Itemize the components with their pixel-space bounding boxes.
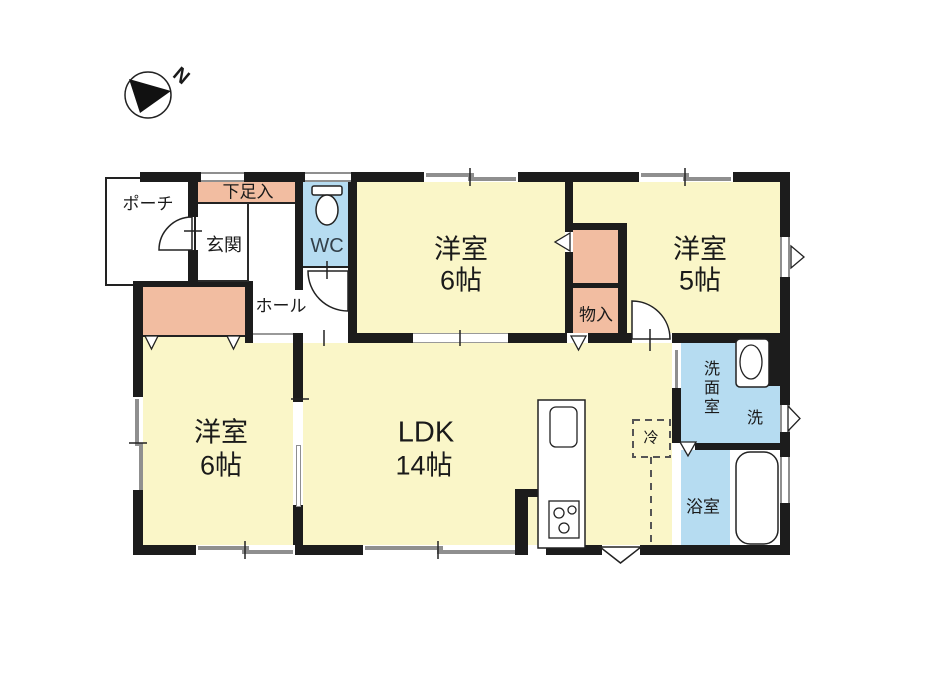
wall-wc-right — [348, 172, 357, 333]
wall-washroom-left — [672, 388, 681, 443]
window-sash — [242, 550, 293, 554]
ldk-floor — [303, 343, 672, 545]
window-right-bathroom — [780, 457, 790, 503]
bedroom-right-name: 洋室 — [673, 237, 727, 264]
sliding-door-line — [675, 350, 678, 388]
bedroom-left-name: 洋室 — [194, 420, 248, 447]
opening-ldk-back — [602, 545, 640, 555]
opening-hall-ldk — [303, 333, 348, 343]
compass-icon — [125, 72, 171, 118]
compass-north-label: N — [169, 64, 193, 89]
wall-bed-divider-a — [565, 182, 573, 232]
closet-upper-floor — [573, 230, 618, 283]
opening-storage — [567, 333, 588, 343]
wall-left-2 — [133, 490, 143, 555]
storage-label: 物入 — [579, 307, 613, 324]
wall-bottom-4 — [546, 545, 602, 555]
wall-closet2-right — [618, 223, 627, 343]
window-sash — [135, 399, 139, 446]
wall-sink-block — [768, 340, 783, 386]
window-sash — [139, 443, 143, 490]
entrance-label: 玄関 — [206, 236, 242, 254]
closet-left-floor — [143, 287, 245, 337]
shoe-cabinet-label: 下足入 — [223, 184, 274, 201]
bedroom-left-size: 6帖 — [200, 453, 242, 480]
porch-floor — [105, 177, 196, 286]
ldk-name: LDK — [398, 419, 454, 448]
opening-bedroom-top-ldk — [413, 333, 508, 343]
partition-entrance-hall — [247, 203, 249, 281]
porch-label: ポーチ — [123, 196, 174, 213]
window-right-washroom — [780, 405, 790, 432]
sliding-door-panel — [296, 445, 301, 507]
window-sash — [641, 173, 689, 177]
wall-porch-b — [188, 250, 198, 282]
bathroom-label: 浴室 — [686, 499, 720, 516]
entrance-step-line — [198, 280, 249, 282]
refrigerator-label: 冷 — [643, 431, 658, 446]
wall-porch-a — [188, 172, 198, 217]
ldk-size: 14帖 — [395, 453, 452, 480]
opening-bedroom-right-door — [632, 333, 672, 343]
bedroom-right-size: 5帖 — [679, 268, 721, 295]
window-sash — [365, 546, 443, 550]
wall-kitchen-stub-v — [515, 489, 528, 549]
floor-plan-canvas: { "title": "1LDK+3room floor plan", "com… — [0, 0, 947, 681]
wall-wc-left — [295, 172, 303, 290]
washer-label: 洗 — [747, 411, 763, 427]
wall-bottom-5 — [640, 545, 790, 555]
window-sash — [426, 173, 474, 177]
wall-bottom-2 — [295, 545, 363, 555]
washroom-floor — [681, 343, 780, 443]
wall-top-3 — [351, 172, 424, 182]
wall-bed-divider-b — [565, 252, 573, 337]
wall-mid-a — [348, 333, 413, 343]
washroom-label: 洗面室 — [701, 360, 717, 417]
opening-bedroom-left-door — [253, 333, 293, 343]
window-right-bedroom-right — [780, 237, 790, 277]
opening-closet-upper — [565, 232, 573, 252]
wc-door-arc — [308, 271, 348, 311]
wall-closet-left-right — [245, 281, 253, 343]
wall-left-1 — [133, 282, 143, 397]
bathtub-icon — [736, 452, 778, 544]
wall-wash-bath — [695, 443, 790, 450]
bedroom-top-size: 6帖 — [440, 268, 482, 295]
opening-bedroom-left-slider — [293, 402, 303, 445]
wc-label: WC — [310, 236, 343, 256]
window-sash — [437, 550, 515, 554]
wall-mid-b — [508, 333, 567, 343]
window-top-wc — [305, 172, 351, 182]
casement-arrow — [791, 246, 804, 268]
wall-right-1 — [780, 172, 790, 237]
wall-top-4 — [518, 172, 639, 182]
opening-bathroom-door — [681, 443, 695, 450]
window-top-entrance — [201, 172, 244, 182]
window-sash — [468, 177, 516, 181]
wall-bed3-right-a — [293, 333, 303, 402]
window-sash — [683, 177, 731, 181]
hall-label: ホール — [256, 298, 307, 315]
bedroom-top-name: 洋室 — [434, 237, 488, 264]
